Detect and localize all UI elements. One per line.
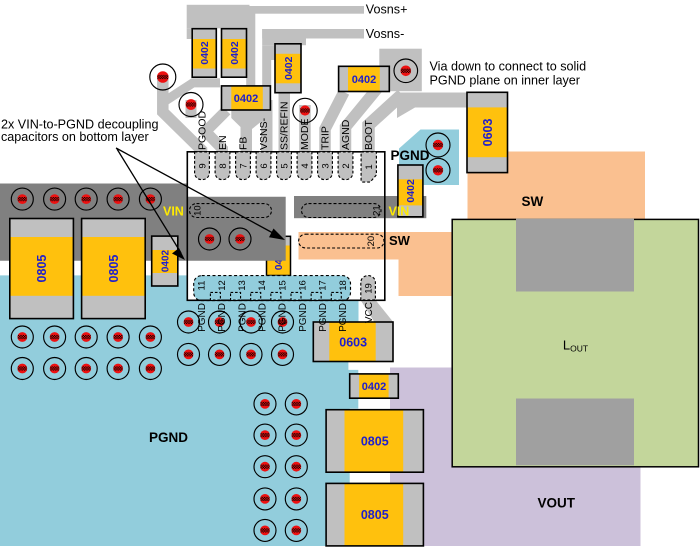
svg-text:19: 19: [363, 283, 374, 294]
svg-text:TRIP: TRIP: [320, 126, 332, 150]
svg-text:EN: EN: [217, 135, 229, 150]
svg-text:17: 17: [318, 280, 329, 291]
svg-text:PGND: PGND: [391, 148, 430, 163]
svg-text:VOUT: VOUT: [538, 496, 576, 511]
svg-text:18: 18: [338, 280, 349, 291]
svg-text:12: 12: [217, 280, 228, 291]
svg-text:SS/REFIN: SS/REFIN: [279, 102, 291, 150]
svg-text:PGOOD: PGOOD: [197, 110, 209, 150]
svg-text:0603: 0603: [481, 119, 495, 147]
svg-text:1: 1: [364, 164, 375, 169]
svg-text:5: 5: [279, 163, 290, 168]
svg-text:3: 3: [320, 163, 331, 168]
svg-text:PGND: PGND: [197, 303, 208, 332]
svg-text:PGND: PGND: [257, 303, 268, 332]
svg-text:0805: 0805: [107, 255, 121, 283]
svg-text:9: 9: [197, 163, 208, 168]
svg-text:PGND: PGND: [278, 303, 289, 332]
svg-text:13: 13: [237, 280, 248, 291]
svg-text:0805: 0805: [361, 508, 389, 522]
svg-text:0603: 0603: [339, 335, 367, 349]
svg-text:Via down to connect to solid: Via down to connect to solid: [430, 60, 587, 74]
svg-text:VIN: VIN: [389, 204, 410, 218]
svg-text:0402: 0402: [199, 41, 211, 65]
svg-text:14: 14: [257, 280, 268, 291]
svg-text:6: 6: [259, 163, 270, 168]
svg-text:16: 16: [297, 280, 308, 291]
svg-text:15: 15: [277, 280, 288, 291]
svg-text:21: 21: [371, 205, 382, 216]
svg-text:20: 20: [366, 236, 377, 247]
svg-text:0402: 0402: [405, 179, 417, 203]
svg-text:BOOT: BOOT: [363, 120, 375, 150]
svg-text:SW: SW: [522, 194, 544, 209]
svg-text:PGND plane on inner layer: PGND plane on inner layer: [430, 74, 581, 88]
svg-text:VCC: VCC: [364, 302, 375, 323]
svg-text:capacitors on bottom layer: capacitors on bottom layer: [1, 130, 149, 144]
svg-text:7: 7: [238, 163, 249, 168]
svg-text:0402: 0402: [352, 74, 376, 86]
svg-text:0805: 0805: [361, 434, 389, 448]
svg-text:0402: 0402: [234, 93, 258, 105]
svg-text:0402: 0402: [283, 56, 295, 80]
svg-text:PGND: PGND: [338, 303, 349, 332]
svg-text:Vosns-: Vosns-: [366, 27, 405, 41]
svg-text:PGND: PGND: [298, 303, 309, 332]
svg-text:0402: 0402: [362, 381, 386, 393]
svg-text:PGND: PGND: [237, 303, 248, 332]
svg-text:PGND: PGND: [318, 303, 329, 332]
svg-text:8: 8: [218, 163, 229, 168]
svg-text:11: 11: [197, 281, 208, 291]
svg-text:0805: 0805: [35, 255, 49, 283]
svg-text:PGND: PGND: [217, 303, 228, 332]
svg-text:VIN: VIN: [163, 205, 184, 219]
svg-text:VSNS-: VSNS-: [258, 117, 270, 150]
svg-text:4: 4: [300, 163, 311, 168]
svg-text:MODE: MODE: [299, 119, 311, 151]
svg-text:PGND: PGND: [149, 430, 188, 445]
svg-text:Vosns+: Vosns+: [366, 3, 408, 17]
svg-text:0402: 0402: [229, 41, 241, 65]
svg-text:AGND: AGND: [340, 119, 352, 150]
svg-text:FB: FB: [238, 137, 250, 150]
svg-text:SW: SW: [389, 233, 411, 248]
svg-text:2: 2: [341, 163, 352, 168]
svg-text:10: 10: [192, 205, 203, 216]
svg-text:0402: 0402: [160, 249, 171, 272]
